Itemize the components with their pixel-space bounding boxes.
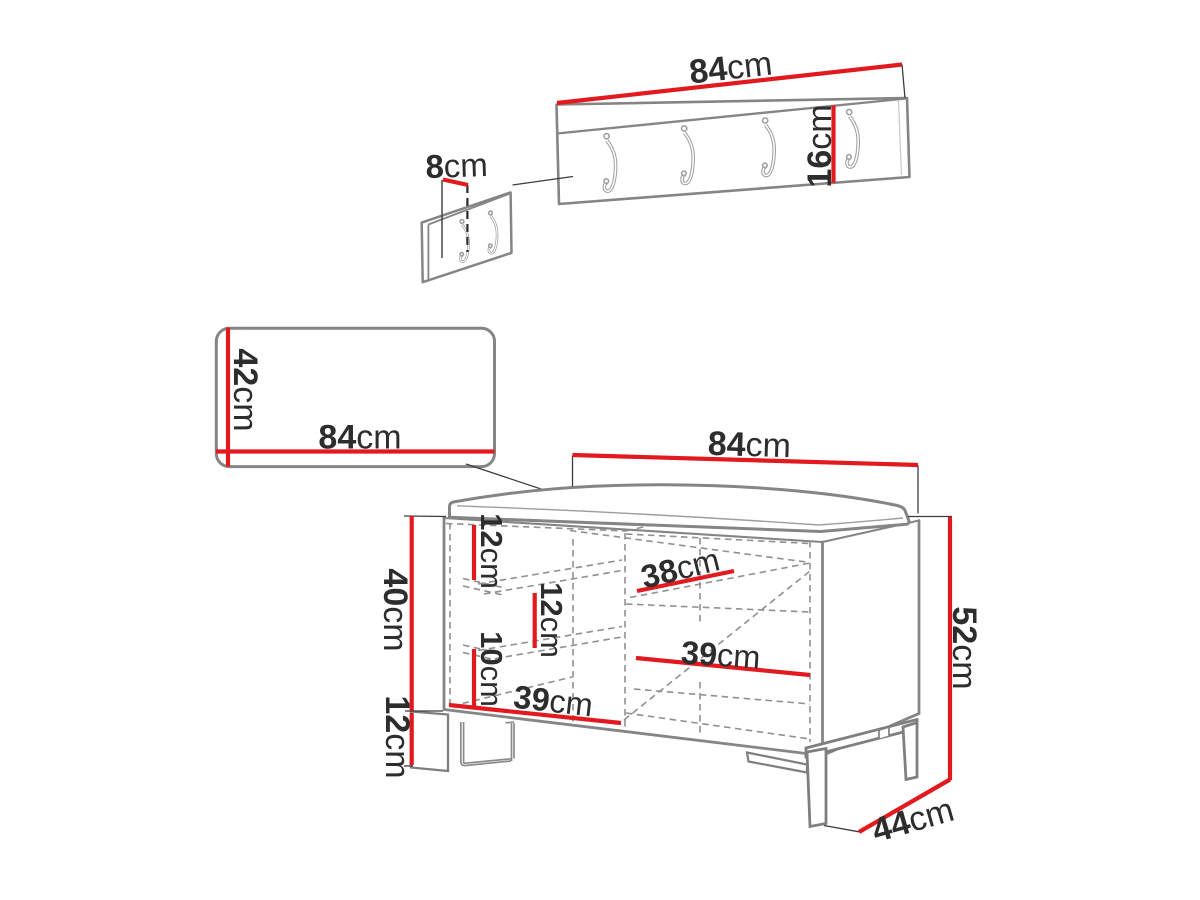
svg-text:12cm: 12cm [534,582,569,658]
svg-text:12cm: 12cm [378,695,416,778]
svg-text:39cm: 39cm [680,634,762,675]
svg-text:84cm: 84cm [318,419,401,457]
svg-text:10cm: 10cm [474,631,509,707]
svg-text:8cm: 8cm [425,146,489,185]
svg-text:52cm: 52cm [945,606,983,689]
svg-text:12cm: 12cm [474,513,509,589]
svg-text:84cm: 84cm [707,425,791,465]
svg-text:42cm: 42cm [226,348,264,431]
svg-text:40cm: 40cm [376,568,414,651]
svg-text:16cm: 16cm [801,104,839,187]
